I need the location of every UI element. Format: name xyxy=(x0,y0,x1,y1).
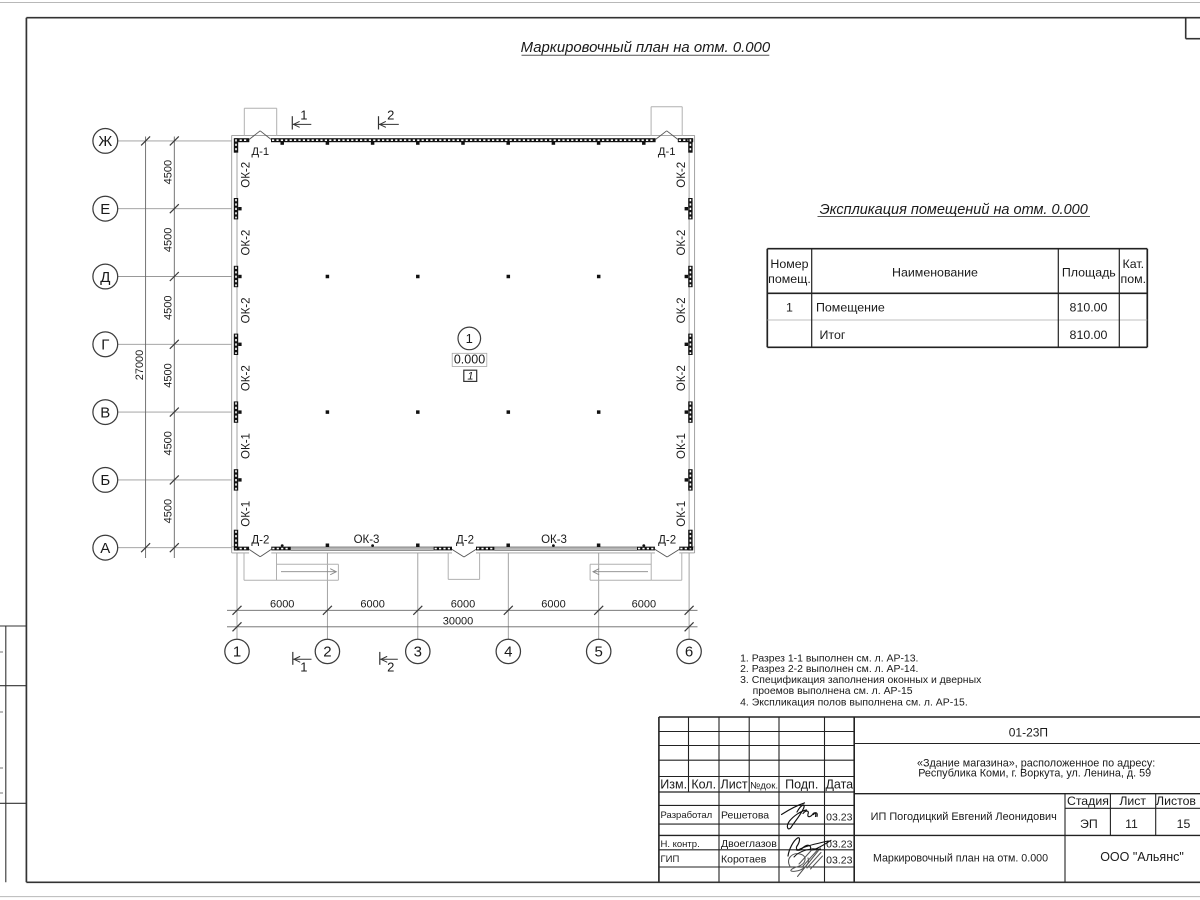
svg-text:4500: 4500 xyxy=(163,363,175,387)
svg-text:ОК-2: ОК-2 xyxy=(241,365,253,391)
svg-text:03.23: 03.23 xyxy=(826,812,852,824)
svg-text:ОК-1: ОК-1 xyxy=(241,433,253,459)
svg-text:4500: 4500 xyxy=(163,295,175,319)
svg-text:4500: 4500 xyxy=(163,160,175,184)
svg-text:проемов выполнена см. л. АР-15: проемов выполнена см. л. АР-15 xyxy=(753,686,913,697)
svg-text:Экспликация помещений на отм.: Экспликация помещений на отм. 0.000 xyxy=(820,202,1088,218)
svg-text:6000: 6000 xyxy=(360,599,384,611)
svg-text:Маркировочный план на отм. 0.0: Маркировочный план на отм. 0.000 xyxy=(873,853,1048,865)
svg-text:27000: 27000 xyxy=(134,350,146,381)
svg-text:пом.: пом. xyxy=(1121,272,1147,286)
svg-text:Подп.: Подп. xyxy=(785,778,818,792)
svg-text:Наименование: Наименование xyxy=(892,266,978,280)
svg-text:1. Разрез 1-1 выполнен см. л.: 1. Разрез 1-1 выполнен см. л. АР-13. xyxy=(740,653,918,664)
svg-text:ОК-2: ОК-2 xyxy=(241,230,253,256)
svg-text:ОК-2: ОК-2 xyxy=(676,162,688,188)
svg-text:6000: 6000 xyxy=(451,599,475,611)
svg-text:Г: Г xyxy=(101,337,109,354)
svg-text:4. Экспликация полов выполнена: 4. Экспликация полов выполнена см. л. АР… xyxy=(740,697,968,708)
svg-text:0.000: 0.000 xyxy=(454,353,485,367)
svg-text:Республика Коми, г. Воркута, у: Республика Коми, г. Воркута, ул. Ленина,… xyxy=(918,768,1151,780)
svg-text:Маркировочный план на отм. 0.0: Маркировочный план на отм. 0.000 xyxy=(521,40,771,56)
svg-text:Двоеглазов: Двоеглазов xyxy=(721,838,777,850)
svg-text:4500: 4500 xyxy=(163,431,175,455)
svg-text:ЭП: ЭП xyxy=(1080,817,1098,831)
svg-text:1: 1 xyxy=(300,108,307,123)
svg-text:ОК-1: ОК-1 xyxy=(676,501,688,527)
svg-text:810.00: 810.00 xyxy=(1070,301,1108,315)
svg-text:ОК-3: ОК-3 xyxy=(354,534,380,546)
svg-text:ОК-2: ОК-2 xyxy=(676,230,688,256)
svg-text:ОК-2: ОК-2 xyxy=(676,365,688,391)
svg-text:Кол.: Кол. xyxy=(691,778,716,792)
svg-text:Номер: Номер xyxy=(770,257,808,271)
svg-text:30000: 30000 xyxy=(443,615,474,627)
svg-text:Б: Б xyxy=(100,472,110,489)
svg-text:4500: 4500 xyxy=(163,499,175,523)
svg-text:3. Спецификация заполнения око: 3. Спецификация заполнения оконных и две… xyxy=(740,674,982,686)
svg-text:Стадия: Стадия xyxy=(1067,794,1109,808)
svg-text:Итог: Итог xyxy=(820,328,846,342)
svg-text:4: 4 xyxy=(504,644,512,661)
svg-text:№док.: №док. xyxy=(750,781,778,792)
svg-text:3: 3 xyxy=(414,644,422,661)
svg-text:5: 5 xyxy=(595,644,603,661)
svg-text:11: 11 xyxy=(1125,817,1138,831)
svg-text:01-23П: 01-23П xyxy=(1009,726,1048,740)
svg-text:03.23: 03.23 xyxy=(826,855,852,867)
svg-text:6000: 6000 xyxy=(541,599,565,611)
svg-text:Дата: Дата xyxy=(825,778,853,792)
svg-text:ОК-1: ОК-1 xyxy=(676,433,688,459)
svg-text:ОК-1: ОК-1 xyxy=(241,501,253,527)
svg-text:Д-1: Д-1 xyxy=(658,146,676,158)
svg-text:Помещение: Помещение xyxy=(816,301,885,315)
svg-text:Площадь: Площадь xyxy=(1062,266,1116,280)
svg-text:Листов: Листов xyxy=(1156,794,1196,808)
svg-text:Кат.: Кат. xyxy=(1123,257,1145,271)
svg-text:810.00: 810.00 xyxy=(1070,328,1108,342)
svg-text:ОК-2: ОК-2 xyxy=(241,162,253,188)
svg-text:ОК-2: ОК-2 xyxy=(676,297,688,323)
svg-text:помещ.: помещ. xyxy=(768,272,811,286)
svg-text:6: 6 xyxy=(685,644,693,661)
svg-text:1: 1 xyxy=(786,301,793,315)
svg-text:Д-2: Д-2 xyxy=(456,534,474,546)
svg-text:ОК-2: ОК-2 xyxy=(241,297,253,323)
svg-text:Н. контр.: Н. контр. xyxy=(661,839,700,850)
svg-text:Лист: Лист xyxy=(1119,794,1146,808)
svg-text:Д-2: Д-2 xyxy=(658,534,676,546)
svg-text:6000: 6000 xyxy=(270,599,294,611)
svg-text:ОК-3: ОК-3 xyxy=(541,534,567,546)
svg-text:1: 1 xyxy=(466,331,473,346)
svg-text:2: 2 xyxy=(387,108,394,123)
svg-text:А: А xyxy=(100,540,110,557)
svg-text:Лист: Лист xyxy=(721,778,748,792)
svg-text:2. Разрез 2-2 выполнен см. л.: 2. Разрез 2-2 выполнен см. л. АР-14. xyxy=(740,664,918,675)
svg-text:6000: 6000 xyxy=(632,599,656,611)
svg-text:1: 1 xyxy=(467,371,473,383)
svg-text:4500: 4500 xyxy=(163,228,175,252)
svg-text:ИП Погодицкий Евгений Леонидов: ИП Погодицкий Евгений Леонидович xyxy=(871,811,1057,823)
svg-text:ГИП: ГИП xyxy=(661,854,680,865)
svg-text:2: 2 xyxy=(323,644,331,661)
svg-text:Решетова: Решетова xyxy=(721,810,769,822)
svg-text:Разработал: Разработал xyxy=(661,810,713,821)
svg-text:Д-1: Д-1 xyxy=(252,146,270,158)
svg-text:ООО "Альянс": ООО "Альянс" xyxy=(1100,850,1184,864)
svg-text:1: 1 xyxy=(300,659,307,674)
svg-text:Д: Д xyxy=(100,269,110,286)
svg-text:Е: Е xyxy=(100,201,110,218)
svg-text:1: 1 xyxy=(233,644,241,661)
svg-text:Д-2: Д-2 xyxy=(251,534,269,546)
svg-text:Изм.: Изм. xyxy=(660,778,687,792)
svg-text:2: 2 xyxy=(387,659,394,674)
svg-text:Ж: Ж xyxy=(98,133,112,150)
svg-text:В: В xyxy=(100,404,110,421)
svg-text:Коротаев: Коротаев xyxy=(721,853,767,865)
svg-text:15: 15 xyxy=(1177,817,1191,831)
